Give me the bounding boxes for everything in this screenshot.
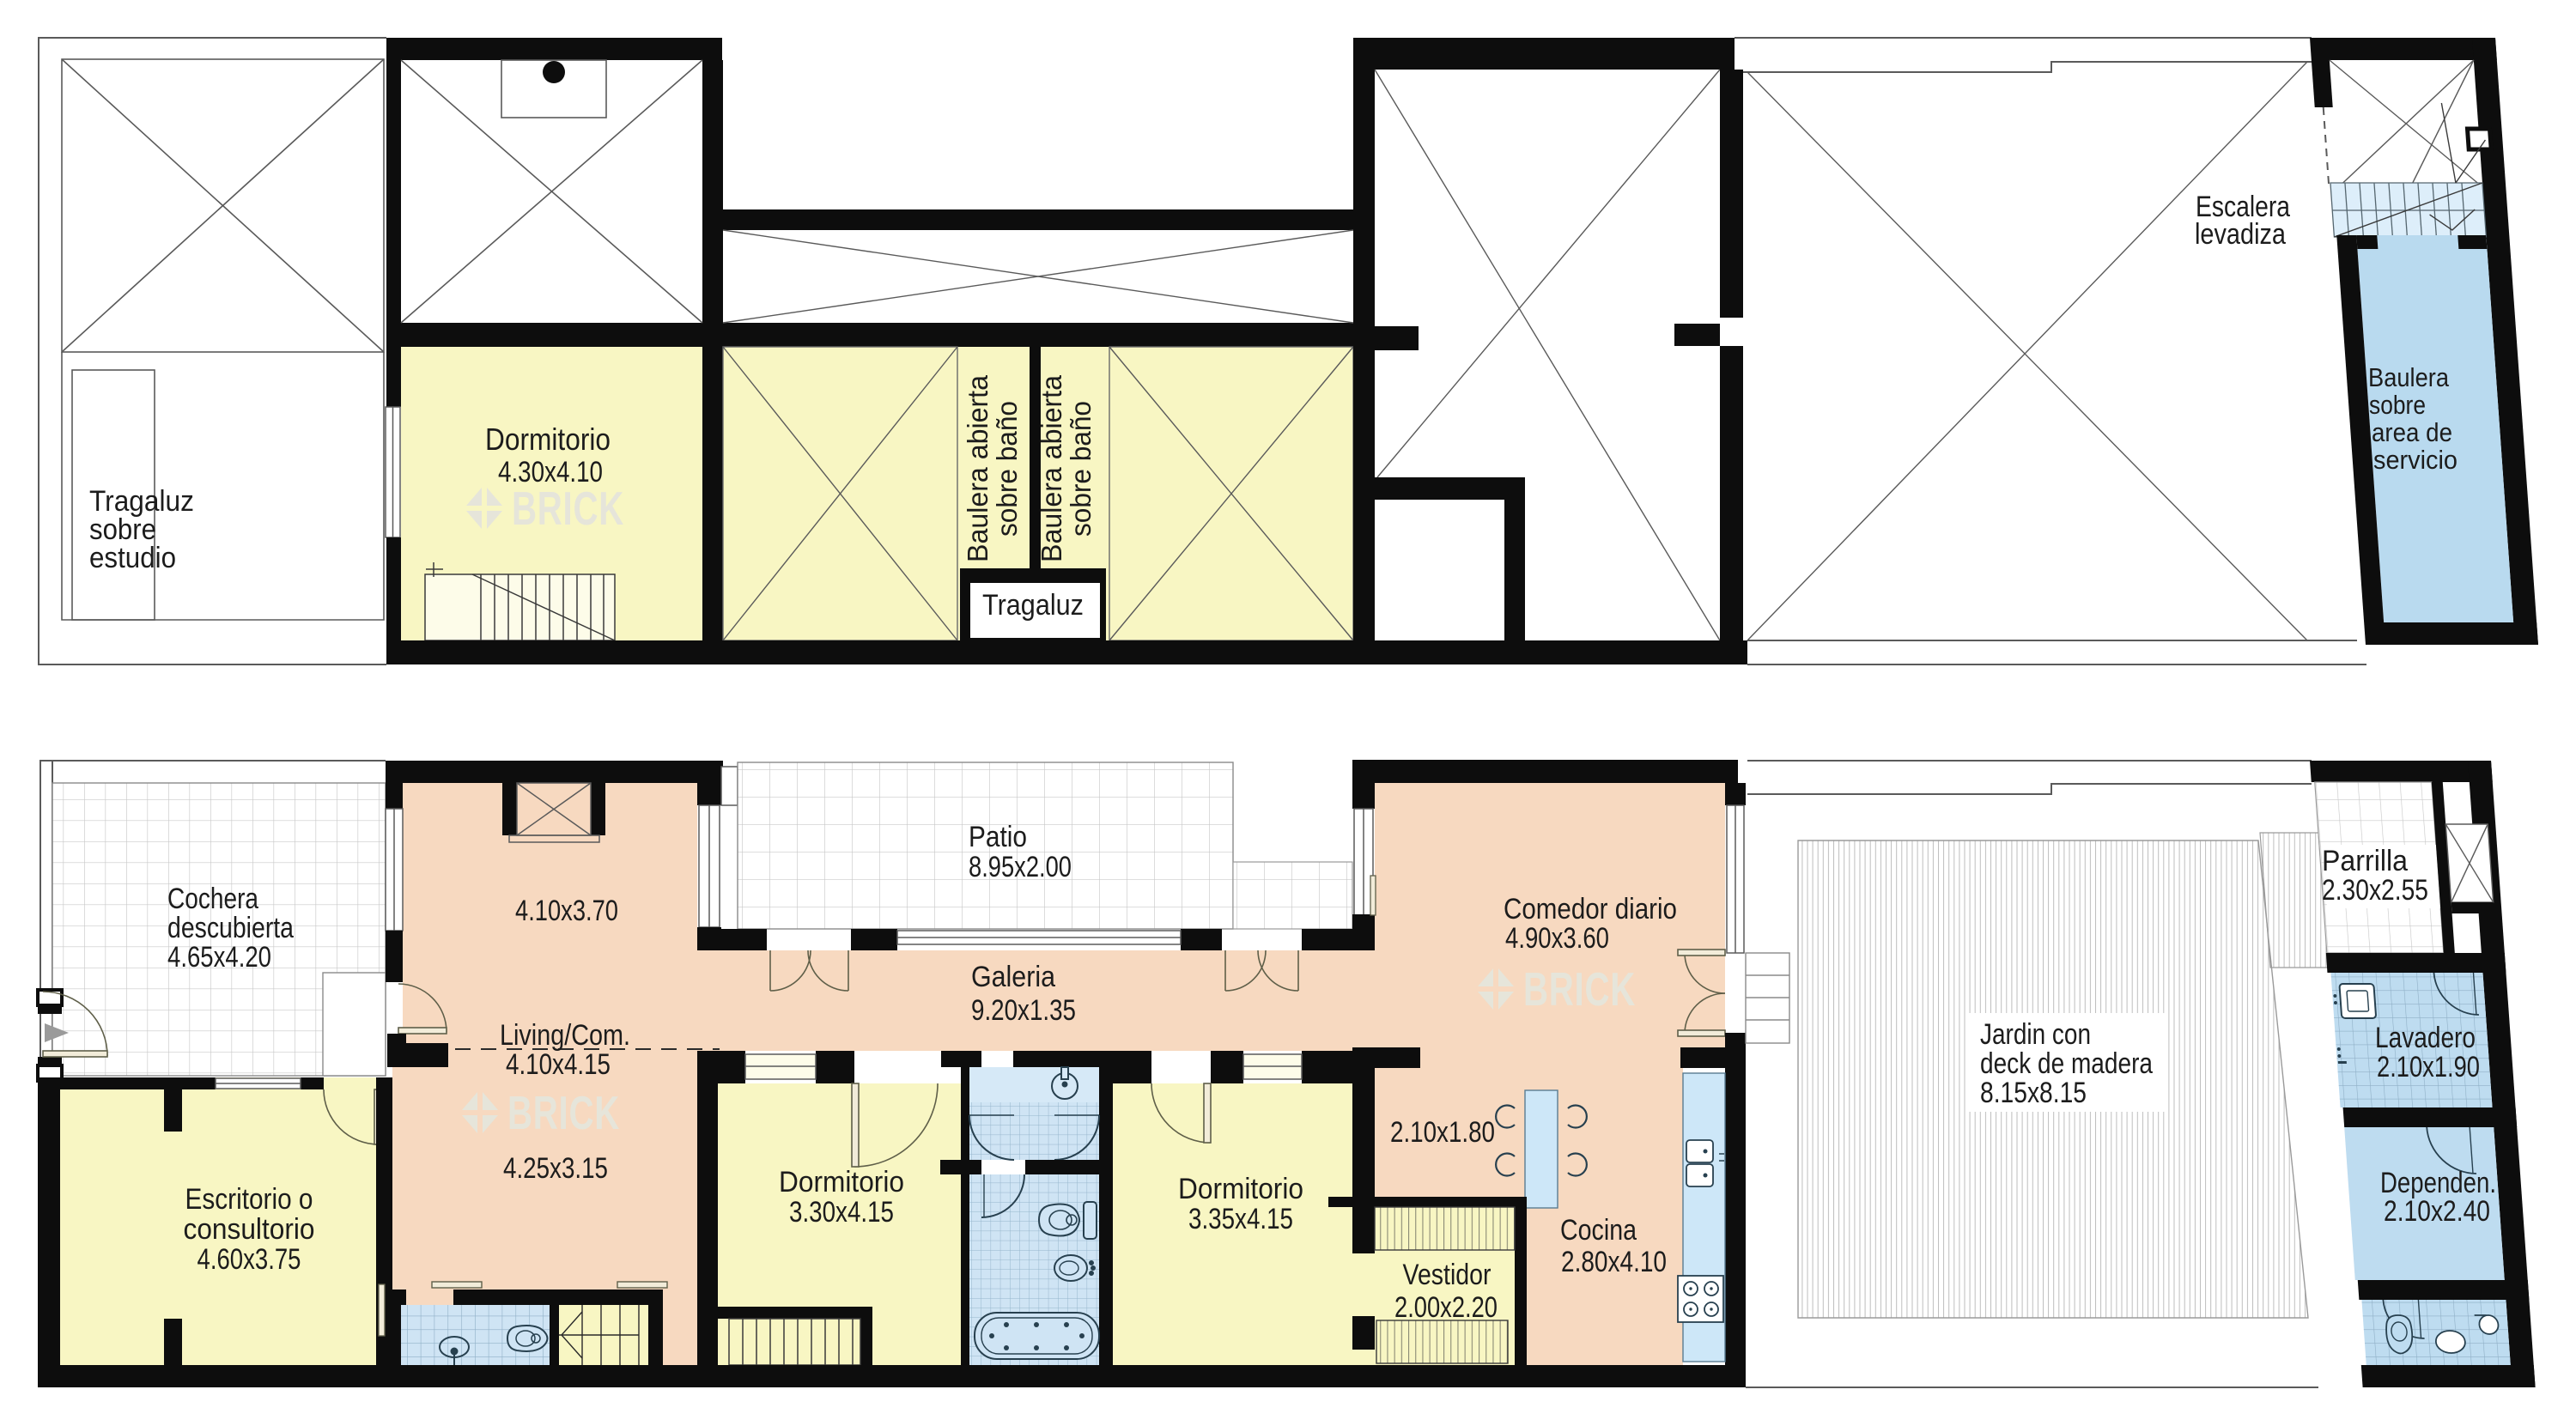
svg-text:9.20x1.35: 9.20x1.35 — [971, 994, 1076, 1027]
svg-text:sobre baño: sobre baño — [1065, 401, 1097, 537]
svg-text:sobre baño: sobre baño — [991, 401, 1023, 537]
svg-text:2.30x2.55: 2.30x2.55 — [2322, 874, 2428, 907]
svg-text:3.30x4.15: 3.30x4.15 — [789, 1196, 894, 1229]
svg-text:levadiza: levadiza — [2195, 218, 2286, 251]
svg-text:8.15x8.15: 8.15x8.15 — [1980, 1077, 2087, 1109]
svg-text:4.60x3.75: 4.60x3.75 — [197, 1243, 301, 1276]
svg-text:Tragaluz: Tragaluz — [982, 589, 1084, 622]
svg-text:Vestidor: Vestidor — [1403, 1259, 1492, 1291]
svg-text:2.10x1.80: 2.10x1.80 — [1390, 1116, 1495, 1149]
svg-text:8.95x2.00: 8.95x2.00 — [969, 851, 1072, 883]
svg-text:estudio: estudio — [89, 542, 176, 574]
svg-text:Parrilla: Parrilla — [2322, 845, 2408, 877]
svg-text:sobre: sobre — [2369, 390, 2426, 420]
svg-text:area de: area de — [2372, 417, 2452, 447]
svg-text:Living/Com.: Living/Com. — [500, 1019, 630, 1052]
svg-text:Baulera abierta: Baulera abierta — [1036, 374, 1067, 562]
svg-text:servicio: servicio — [2373, 445, 2458, 475]
svg-text:4.90x3.60: 4.90x3.60 — [1505, 922, 1609, 955]
svg-text:3.35x4.15: 3.35x4.15 — [1188, 1203, 1293, 1235]
svg-text:deck de madera: deck de madera — [1980, 1047, 2153, 1080]
svg-text:Dormitorio: Dormitorio — [779, 1166, 904, 1198]
svg-text:2.00x2.20: 2.00x2.20 — [1394, 1291, 1498, 1324]
svg-text:Baulera: Baulera — [2368, 362, 2450, 392]
svg-text:4.10x3.70: 4.10x3.70 — [515, 895, 618, 927]
svg-text:consultorio: consultorio — [184, 1213, 315, 1246]
svg-text:descubierta: descubierta — [167, 912, 294, 944]
svg-text:2.10x1.90: 2.10x1.90 — [2377, 1051, 2480, 1083]
svg-text:Jardin con: Jardin con — [1980, 1018, 2091, 1051]
svg-text:Galeria: Galeria — [971, 961, 1055, 993]
svg-text:Lavadero: Lavadero — [2375, 1022, 2476, 1054]
svg-text:Dormitorio: Dormitorio — [485, 422, 611, 457]
svg-text:Baulera abierta: Baulera abierta — [962, 374, 993, 562]
svg-text:Escritorio o: Escritorio o — [185, 1183, 313, 1216]
svg-text:4.10x4.15: 4.10x4.15 — [506, 1048, 611, 1081]
svg-text:4.65x4.20: 4.65x4.20 — [167, 941, 271, 974]
svg-text:Patio: Patio — [969, 821, 1027, 853]
svg-text:Comedor diario: Comedor diario — [1504, 893, 1677, 925]
svg-text:Cochera: Cochera — [167, 883, 258, 915]
svg-text:2.10x2.40: 2.10x2.40 — [2384, 1195, 2490, 1228]
svg-text:2.80x4.10: 2.80x4.10 — [1561, 1246, 1667, 1278]
svg-text:Dormitorio: Dormitorio — [1178, 1173, 1303, 1205]
svg-text:Cocina: Cocina — [1560, 1214, 1637, 1247]
svg-text:4.25x3.15: 4.25x3.15 — [503, 1152, 608, 1185]
